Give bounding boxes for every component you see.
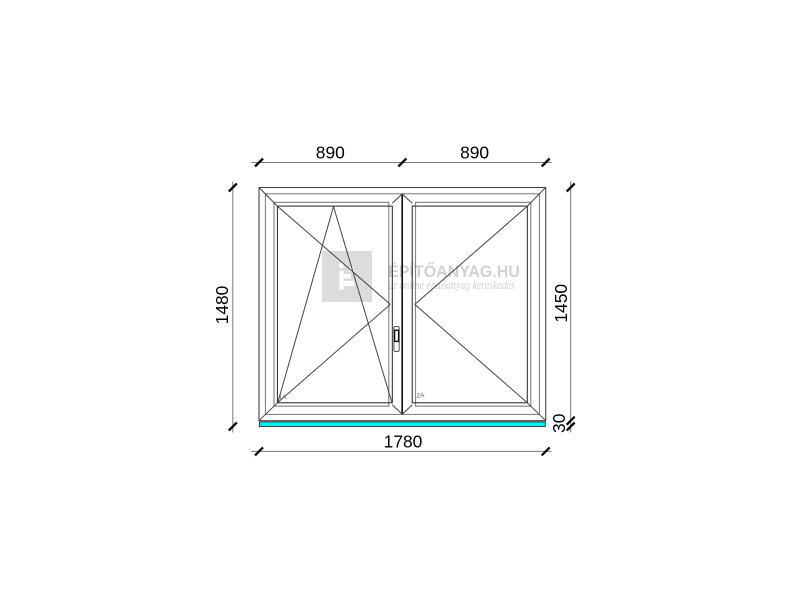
svg-text:1780: 1780: [384, 432, 423, 452]
svg-text:890: 890: [316, 143, 345, 163]
svg-text:1A: 1A: [279, 394, 288, 401]
svg-text:2A: 2A: [417, 393, 426, 400]
svg-text:30: 30: [549, 414, 569, 433]
svg-text:890: 890: [460, 143, 489, 163]
svg-text:1450: 1450: [551, 284, 571, 323]
svg-text:1480: 1480: [212, 286, 232, 325]
svg-text:az online építőanyag kereskedé: az online építőanyag kereskedés: [388, 278, 515, 292]
